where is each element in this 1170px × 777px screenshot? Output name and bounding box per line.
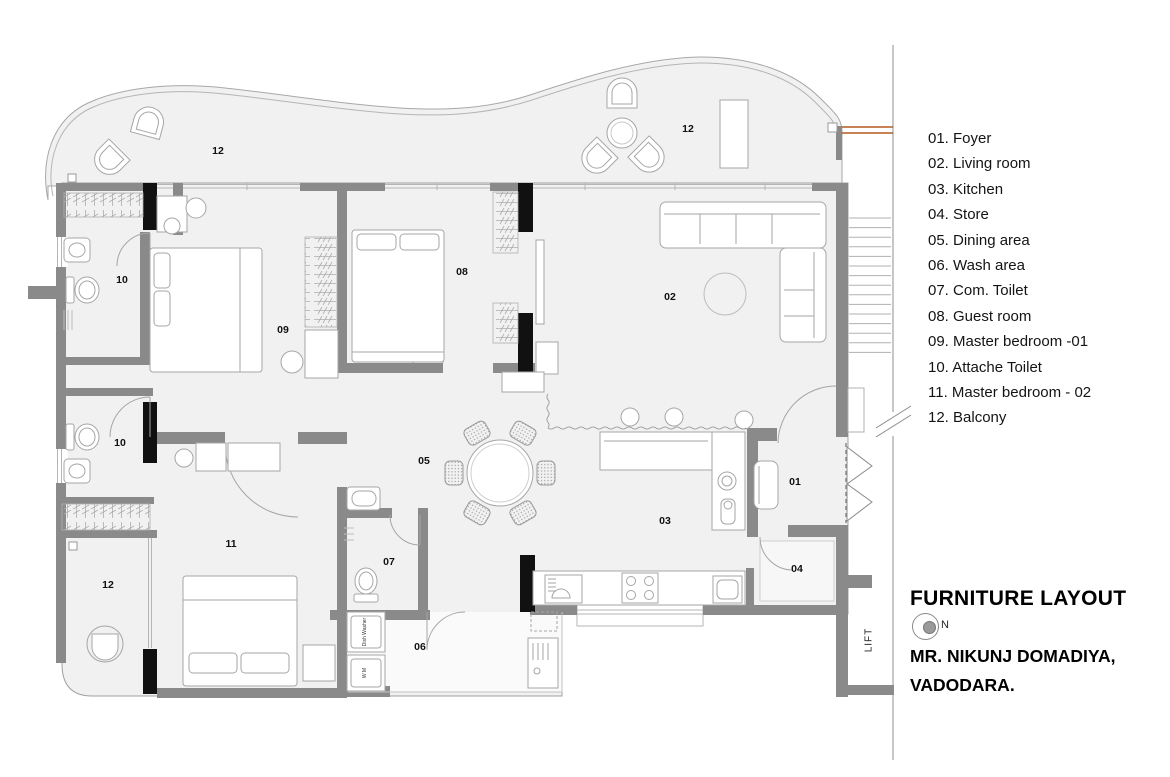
lift-label: LIFT (864, 628, 875, 653)
toilet-icon (354, 568, 378, 602)
legend-item: 08. Guest room (928, 304, 1168, 329)
tub-chair-icon (607, 78, 637, 108)
wardrobe-icon (305, 237, 337, 327)
toilet-icon (66, 277, 99, 303)
washbasin-icon (64, 238, 90, 262)
tv-unit-icon (536, 342, 558, 374)
client-city: VADODARA. (910, 675, 1015, 696)
legend-item: 06. Wash area (928, 253, 1168, 278)
service-duct-lines (842, 127, 893, 133)
dining-table-icon (467, 440, 533, 506)
wardrobe-icon (493, 303, 518, 343)
room-legend: 01. Foyer02. Living room03. Kitchen04. S… (928, 126, 1168, 431)
planter-icon (720, 100, 748, 168)
wardrobe-icon (64, 193, 143, 217)
mirror-icon (186, 198, 206, 218)
tv-panel-icon (536, 240, 544, 324)
legend-item: 12. Balcony (928, 405, 1168, 430)
bar-stool-icon (665, 408, 683, 426)
stove-icon (622, 573, 658, 603)
toilet-icon (66, 424, 99, 450)
microwave-icon (545, 575, 582, 603)
north-label: N (941, 619, 949, 631)
side-cabinet-icon (303, 645, 335, 681)
kitchen-sink-icon (713, 576, 742, 603)
legend-item: 04. Store (928, 202, 1168, 227)
bed-icon (352, 230, 444, 362)
bed-icon (183, 576, 297, 686)
bar-stool-icon (735, 411, 753, 429)
sheet-title: FURNITURE LAYOUT (910, 587, 1126, 611)
store-floor (760, 541, 834, 601)
cabinet-icon (305, 330, 338, 378)
washbasin-icon (347, 487, 380, 510)
north-arrow-icon (912, 613, 939, 640)
stool-icon (164, 218, 180, 234)
furniture-layout-sheet: 01. Foyer02. Living room03. Kitchen04. S… (0, 0, 1170, 777)
wardrobe-icon (493, 192, 518, 253)
chair-icon (281, 351, 303, 373)
washing-machine-icon (347, 655, 385, 691)
legend-item: 07. Com. Toilet (928, 278, 1168, 303)
wash-sink-icon (528, 638, 558, 688)
legend-item: 11. Master bedroom - 02 (928, 380, 1168, 405)
bar-stool-icon (621, 408, 639, 426)
cabinet-icon (196, 443, 226, 471)
legend-item: 09. Master bedroom -01 (928, 329, 1168, 354)
legend-item: 02. Living room (928, 151, 1168, 176)
wardrobe-icon (62, 504, 150, 530)
stair-landing (848, 388, 911, 437)
foyer-bench-icon (754, 461, 778, 509)
dining-chair-icon (445, 461, 463, 485)
stool-icon (175, 449, 193, 467)
legend-item: 01. Foyer (928, 126, 1168, 151)
bed-icon (150, 248, 262, 372)
entrance-door-icon (846, 443, 872, 523)
legend-item: 05. Dining area (928, 228, 1168, 253)
legend-item: 10. Attache Toilet (928, 355, 1168, 380)
staircase-icon (849, 218, 891, 352)
cabinet-icon (502, 372, 544, 392)
cabinet-icon (228, 443, 280, 471)
dining-chair-icon (537, 461, 555, 485)
legend-item: 03. Kitchen (928, 177, 1168, 202)
water-purifier-icon (721, 499, 735, 524)
washbasin-icon (64, 459, 90, 483)
dishwasher-icon (347, 612, 385, 652)
balcony-table-icon (611, 122, 633, 144)
client-name: MR. NIKUNJ DOMADIYA, (910, 646, 1115, 667)
